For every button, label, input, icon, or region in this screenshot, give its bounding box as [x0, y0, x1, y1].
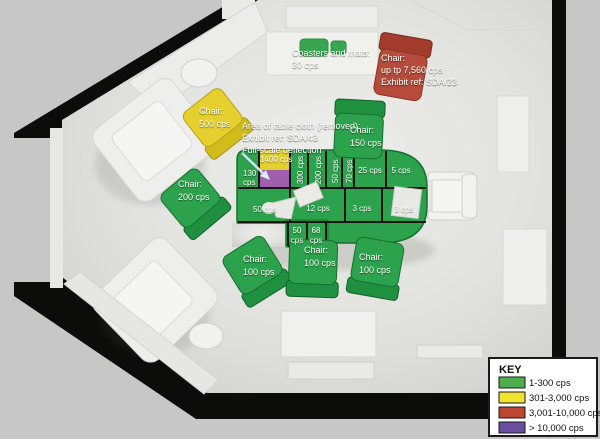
cell-300: 300 cps: [296, 156, 305, 184]
floor-plan-canvas: Coasters and mats: 30 cps Chair: up tp 7…: [0, 0, 600, 439]
bay-recess: [14, 138, 50, 282]
top-chair-label: Chair:: [350, 125, 374, 135]
svg-text:Exhibit ref: SDA/23: Exhibit ref: SDA/23: [381, 77, 457, 87]
cell-12: 12 cps: [306, 204, 330, 213]
svg-text:Full-scale deflection: Full-scale deflection: [242, 145, 322, 155]
cell-3-left: 3 cps: [352, 204, 371, 213]
coasters-label: Coasters and mats:: [292, 48, 370, 58]
svg-text:cps: cps: [310, 236, 322, 245]
cell-70: 70 cps: [345, 159, 354, 183]
bar-counter: [281, 311, 376, 357]
legend-label-yellow: 301-3,000 cps: [529, 393, 589, 404]
svg-text:200 cps: 200 cps: [178, 192, 210, 202]
svg-text:150 cps: 150 cps: [350, 138, 382, 148]
door-lower-right: [503, 229, 547, 305]
svg-text:cps: cps: [243, 178, 255, 187]
survey-table: [232, 150, 427, 247]
cell-200: 200 cps: [314, 156, 323, 184]
bottom-center-chair-label: Chair:: [304, 245, 328, 255]
bay-wall-panel: [50, 128, 63, 288]
cell-25: 25 cps: [358, 166, 382, 175]
wall-shelf: [286, 6, 378, 28]
counter-shelf: [417, 345, 483, 358]
radiation-survey-floor-plan: Coasters and mats: 30 cps Chair: up tp 7…: [0, 0, 600, 439]
svg-text:up tp 7,560 cps: up tp 7,560 cps: [381, 65, 443, 75]
legend-swatch-yellow: [499, 392, 525, 403]
cell-5: 5 cps: [391, 166, 410, 175]
legend-swatch-purple: [499, 422, 525, 433]
bottom-left-chair-label: Chair:: [243, 254, 267, 264]
cell-130: 130: [243, 169, 257, 178]
round-table-bottom: [189, 323, 223, 349]
svg-text:500 cps: 500 cps: [199, 119, 231, 129]
cell-tablecloth-area: 1400 cps: [260, 155, 292, 164]
svg-text:100 cps: 100 cps: [243, 267, 275, 277]
red-chair-label: Chair:: [381, 53, 405, 63]
white-chair-right: [428, 172, 477, 220]
cell-3-right: 3 cps: [394, 205, 413, 214]
svg-text:100 cps: 100 cps: [359, 265, 391, 275]
svg-text:Exhibit ref: SDA/43: Exhibit ref: SDA/43: [242, 133, 318, 143]
yellow-chair-label: Chair:: [199, 106, 223, 116]
legend-label-red: 3,001-10,000 cps: [529, 408, 600, 419]
legend-title: KEY: [499, 364, 522, 376]
tablecloth-note: Area of table cloth (removed):: [242, 121, 361, 131]
legend-label-green: 1-300 cps: [529, 378, 571, 389]
bottom-right-chair-label: Chair:: [359, 252, 383, 262]
legend: KEY 1-300 cps 301-3,000 cps 3,001-10,000…: [489, 358, 600, 436]
legend-swatch-red: [499, 407, 525, 418]
legend-swatch-green: [499, 377, 525, 388]
cell-50-large: 50 cps: [253, 205, 277, 214]
svg-text:cps: cps: [291, 236, 303, 245]
cell-50-vert: 50 cps: [331, 159, 340, 183]
cell-68: 68: [312, 226, 321, 235]
tray: [288, 362, 374, 379]
round-table-top: [181, 59, 217, 87]
legend-label-purple: > 10,000 cps: [529, 423, 584, 434]
cell-50-small: 50: [293, 226, 302, 235]
door-upper-right: [497, 96, 529, 172]
left-chair-label: Chair:: [178, 179, 202, 189]
svg-text:30 cps: 30 cps: [292, 60, 319, 70]
svg-text:100 cps: 100 cps: [304, 258, 336, 268]
